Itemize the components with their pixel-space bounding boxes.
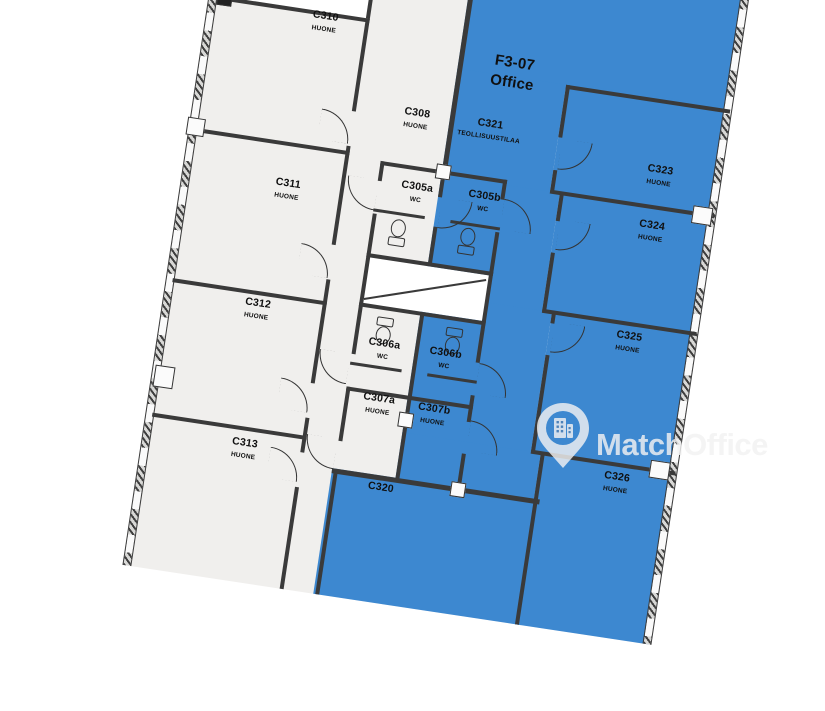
room-label-c308: C308HUONE	[402, 106, 431, 132]
room-label-c305b: C305bWC	[466, 188, 501, 215]
highlight-label: F3-07 Office	[489, 50, 538, 95]
room-label-c305a: C305aWC	[399, 179, 434, 206]
toilet-bowl	[390, 218, 408, 238]
room-label-c307a: C307aHUONE	[361, 391, 396, 418]
map-pin-building-icon	[534, 402, 592, 474]
room-label-c307b: C307bHUONE	[416, 401, 451, 428]
toilet-tank	[387, 236, 405, 247]
watermark: MatchOffice	[534, 402, 768, 474]
room-label-c306b: C306bWC	[427, 345, 462, 372]
pillar	[449, 481, 466, 498]
toilet-tank	[376, 316, 394, 327]
pillar	[185, 117, 205, 137]
pillar	[152, 365, 175, 390]
room-label-c313: C313HUONE	[230, 436, 259, 462]
toilet-bowl	[459, 227, 477, 247]
room-label-c310: C310HUONE	[310, 9, 339, 35]
room-label-c323: C323HUONE	[645, 163, 674, 189]
pillar	[435, 163, 452, 180]
watermark-brand: MatchOffice	[596, 427, 768, 463]
toilet-tank	[445, 327, 463, 338]
room-label-c324: C324HUONE	[637, 218, 666, 244]
room-label-c306a: C306aWC	[366, 336, 401, 363]
toilet-tank	[457, 244, 475, 255]
room-label-c311: C311HUONE	[273, 177, 301, 203]
pillar	[691, 205, 713, 226]
floor-plan: F3-07 Office C310HUONE C311HUONE C312HUO…	[119, 0, 748, 711]
floorplan-page: { "plan": { "highlight": { "code": "F3-0…	[0, 0, 825, 500]
pillar	[397, 412, 414, 429]
room-label-c325: C325HUONE	[614, 329, 643, 355]
room-label-c312: C312HUONE	[243, 296, 272, 322]
